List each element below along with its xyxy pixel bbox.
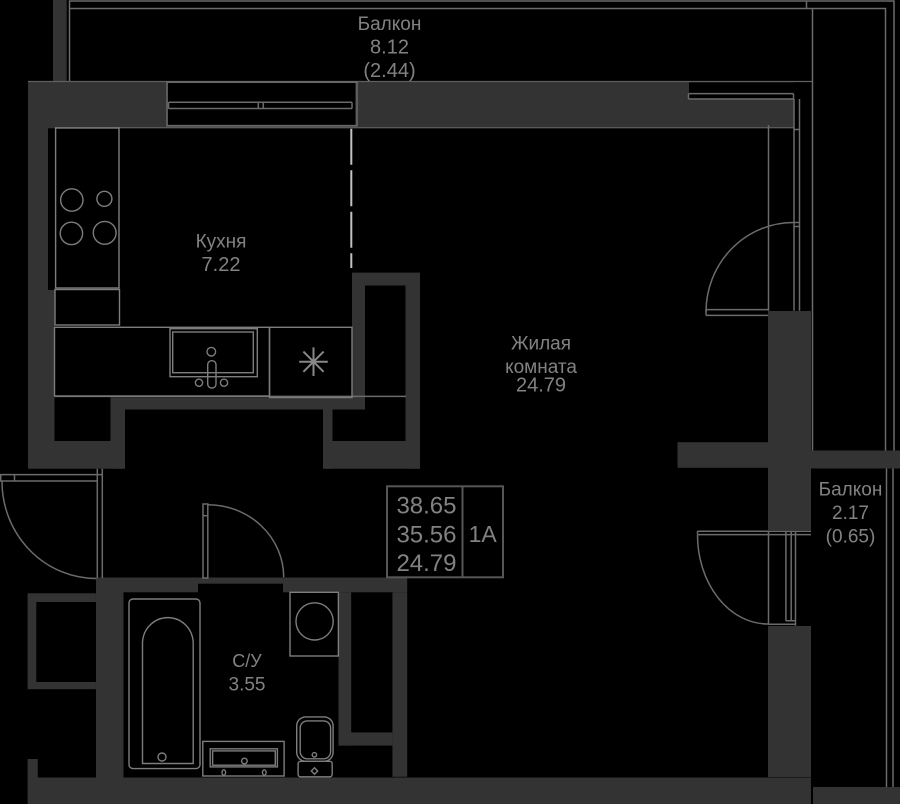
svg-text:С/У: С/У [232, 651, 262, 671]
svg-text:24.79: 24.79 [516, 375, 566, 397]
svg-text:Кухня: Кухня [196, 232, 247, 253]
svg-text:3.55: 3.55 [229, 675, 266, 696]
svg-text:7.22: 7.22 [202, 254, 241, 276]
svg-text:8.12: 8.12 [370, 37, 409, 59]
svg-text:Балкон: Балкон [358, 14, 422, 35]
svg-text:(0.65): (0.65) [826, 527, 876, 548]
svg-text:24.79: 24.79 [396, 550, 456, 577]
svg-text:35.56: 35.56 [396, 521, 456, 548]
svg-text:2.17: 2.17 [832, 503, 869, 524]
svg-text:38.65: 38.65 [396, 493, 456, 520]
svg-text:(2.44): (2.44) [363, 60, 415, 82]
svg-text:Жилая: Жилая [511, 334, 571, 355]
svg-text:Балкон: Балкон [819, 480, 883, 501]
svg-text:1А: 1А [469, 521, 498, 547]
